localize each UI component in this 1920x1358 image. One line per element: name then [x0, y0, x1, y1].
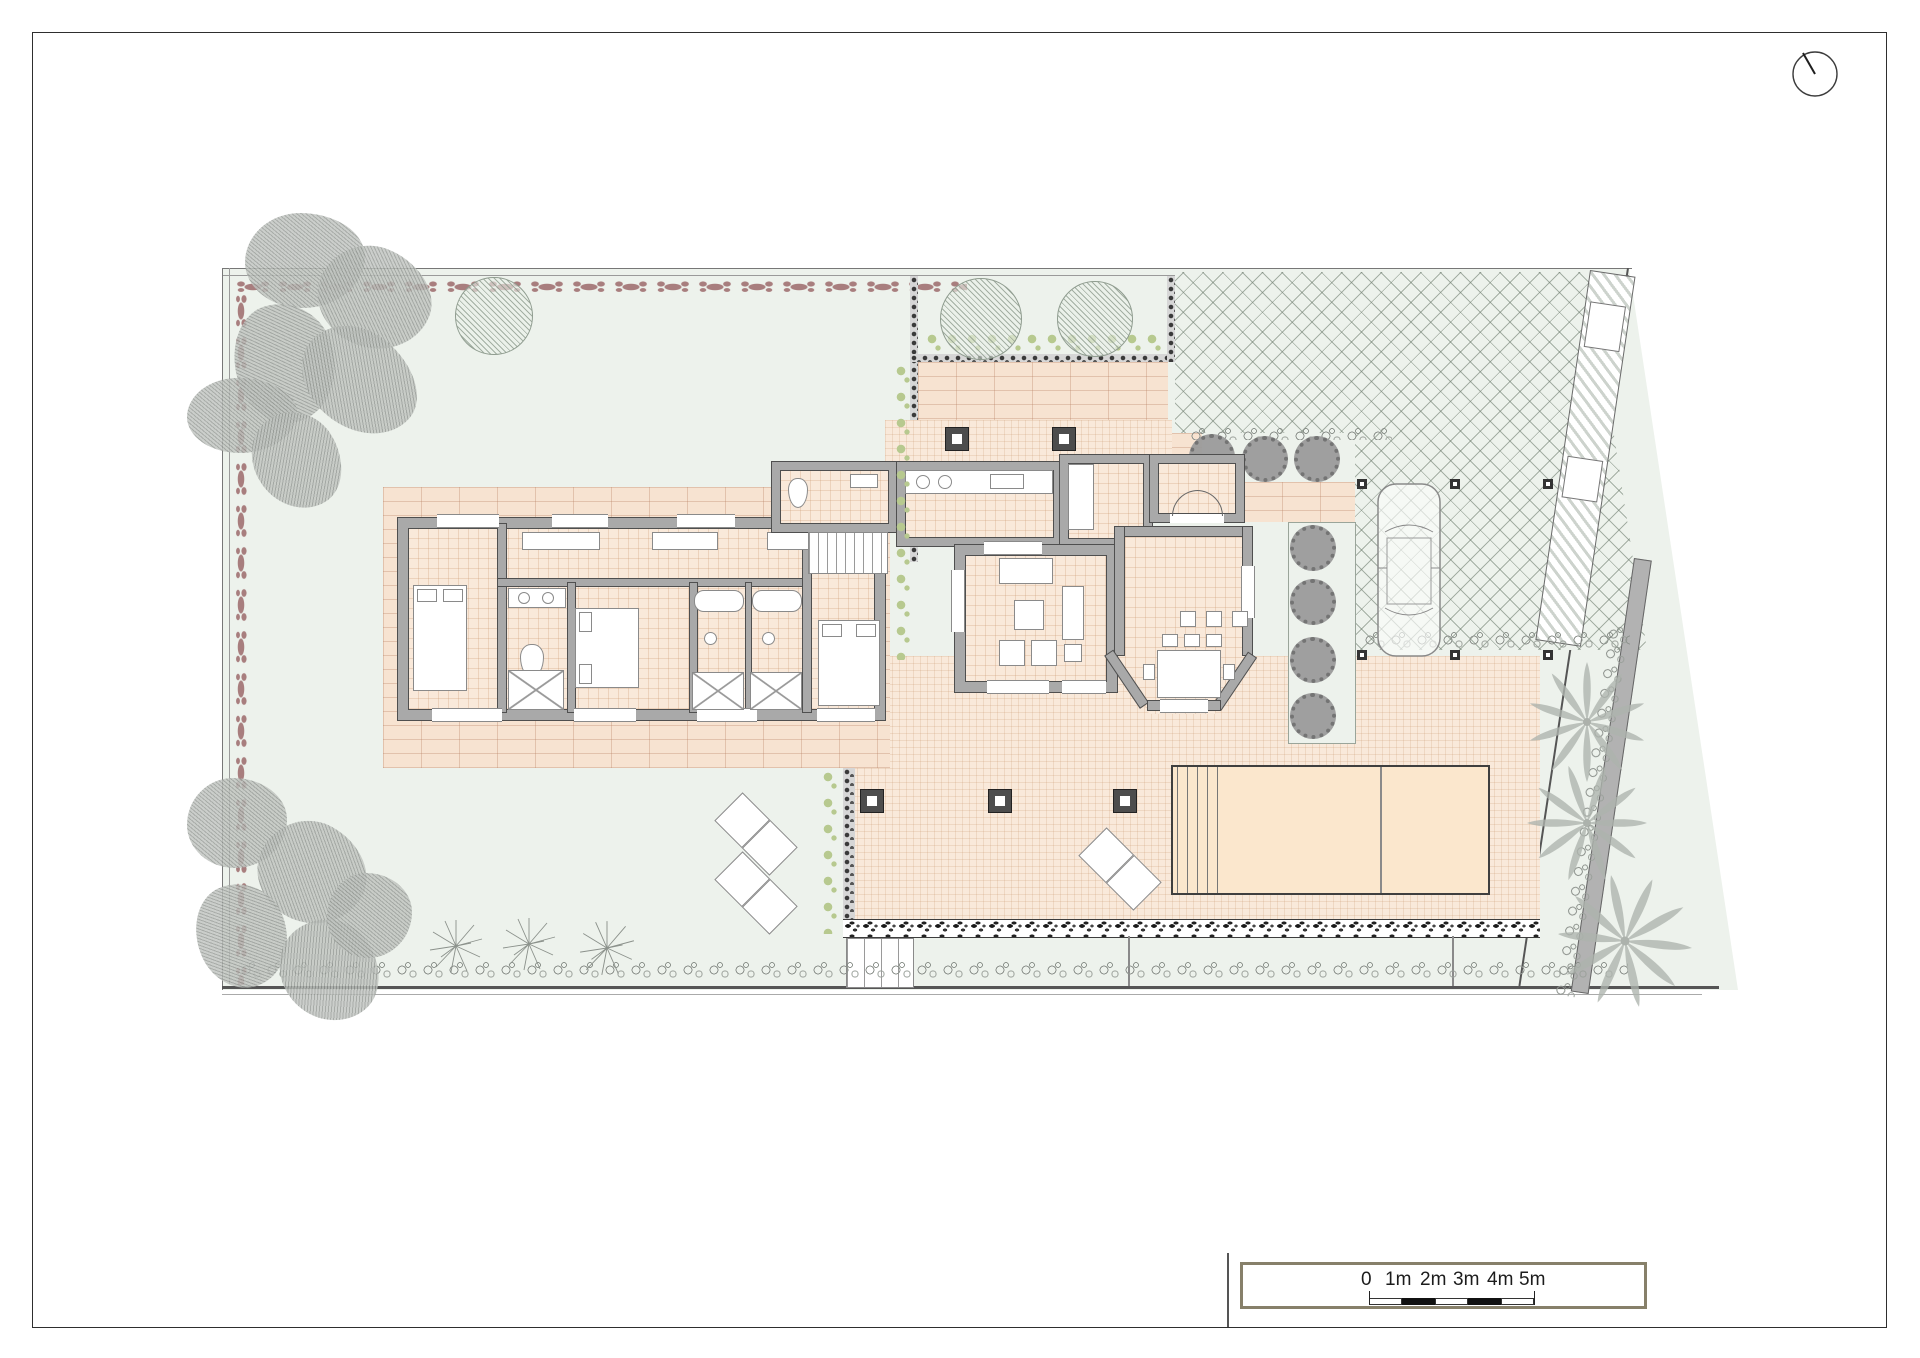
- staircase: [808, 532, 888, 574]
- site-plan-sheet: 0 1m 2m 3m 4m 5m: [0, 0, 1920, 1358]
- bed: [413, 585, 467, 691]
- parking-marker: [1543, 479, 1553, 489]
- terrace-edge-wall: [843, 768, 855, 923]
- tree-round-icon: [455, 277, 533, 355]
- palm-tree-icon: [1538, 854, 1711, 1027]
- scale-segment: [1369, 1298, 1402, 1305]
- window: [817, 708, 875, 722]
- kitchen-island-stool: [1180, 611, 1196, 627]
- wardrobe: [522, 532, 600, 550]
- window: [552, 514, 608, 528]
- scale-label: 3m: [1453, 1269, 1479, 1291]
- window: [1062, 680, 1106, 694]
- dining-chair: [1143, 664, 1155, 680]
- pool-steps: [1177, 767, 1223, 893]
- bed: [575, 608, 639, 688]
- sink: [704, 632, 717, 645]
- kitchen-island-stool: [1206, 611, 1222, 627]
- coffee-table: [1014, 600, 1044, 630]
- scale-tick: [1369, 1291, 1370, 1305]
- parking-marker: [1450, 479, 1460, 489]
- floor-light: [1114, 790, 1136, 812]
- planter-tree-icon: [1290, 579, 1336, 625]
- sink-counter: [508, 588, 566, 608]
- gate-opening: [1584, 301, 1626, 352]
- scale-bar: 0 1m 2m 3m 4m 5m: [1240, 1262, 1647, 1309]
- armchair: [999, 640, 1025, 666]
- window: [987, 680, 1049, 694]
- shrub-column: [891, 360, 913, 660]
- scale-label: 4m: [1487, 1269, 1513, 1291]
- shower: [508, 670, 564, 710]
- armchair: [1031, 640, 1057, 666]
- parking-marker: [1450, 650, 1460, 660]
- scale-label: 1m: [1385, 1269, 1411, 1291]
- gravel-border: [843, 919, 1540, 938]
- car-icon: [1373, 480, 1445, 660]
- boundary-top: [222, 268, 1632, 269]
- sink: [542, 592, 554, 604]
- bed: [818, 620, 880, 706]
- wardrobe: [1068, 464, 1094, 530]
- sink: [518, 592, 530, 604]
- scale-label: 5m: [1519, 1269, 1545, 1291]
- scale-segment: [1402, 1298, 1435, 1305]
- dining-table: [1157, 650, 1221, 698]
- floor-light: [989, 790, 1011, 812]
- sofa: [1062, 586, 1084, 640]
- parking-marker: [1357, 650, 1367, 660]
- courtyard-wall-bottom: [910, 354, 1172, 362]
- interior-wall: [568, 583, 575, 712]
- boundary-left-inner: [229, 268, 230, 984]
- parking-marker: [1357, 479, 1367, 489]
- window: [697, 708, 757, 722]
- dining-chair: [1206, 634, 1222, 647]
- sofa: [999, 558, 1053, 584]
- boundary-bottom-outer: [222, 994, 1702, 995]
- branch-tree-icon: [500, 915, 558, 973]
- pergola-post: [946, 428, 968, 450]
- window: [1160, 699, 1208, 713]
- window: [432, 708, 502, 722]
- scale-segment: [1468, 1298, 1501, 1305]
- scale-segment: [1435, 1298, 1468, 1305]
- gate-opening: [1561, 456, 1603, 503]
- tree-round-icon: [1057, 281, 1133, 357]
- window: [984, 541, 1042, 555]
- sink-counter: [850, 474, 878, 488]
- shower: [750, 672, 802, 710]
- planter-tree-icon: [1294, 436, 1340, 482]
- wardrobe: [652, 532, 718, 550]
- kitchen-island-stool: [1232, 611, 1248, 627]
- planter-tree-icon: [1290, 693, 1336, 739]
- sink: [762, 632, 775, 645]
- shrub-column: [818, 766, 840, 934]
- boundary-left: [222, 268, 223, 990]
- interior-wall: [498, 524, 506, 712]
- pool-lane-line: [1380, 767, 1382, 893]
- scale-label: 0: [1361, 1269, 1372, 1291]
- pergola-post: [1053, 428, 1075, 450]
- side-table: [1064, 644, 1082, 662]
- scale-segment: [1501, 1298, 1534, 1305]
- planter-tree-icon: [1290, 637, 1336, 683]
- bathtub: [694, 590, 744, 612]
- dining-chair: [1223, 664, 1235, 680]
- boundary-bottom: [222, 986, 1719, 989]
- tree-round-icon: [940, 278, 1022, 360]
- site-plan: [222, 268, 1752, 1028]
- branch-tree-icon: [427, 917, 485, 975]
- kitchen-sink: [990, 474, 1024, 489]
- titleblock-divider: [1227, 1253, 1229, 1327]
- north-indicator-icon: [1783, 42, 1847, 106]
- shower: [692, 672, 744, 710]
- scale-label: 2m: [1420, 1269, 1446, 1291]
- courtyard-wall-right: [1167, 276, 1175, 362]
- window: [677, 514, 735, 528]
- floor-light: [861, 790, 883, 812]
- planter-tree-icon: [1242, 436, 1288, 482]
- window: [437, 514, 499, 528]
- branch-tree-icon: [577, 918, 637, 978]
- window: [574, 708, 636, 722]
- bathtub: [752, 590, 802, 612]
- dining-chair: [1184, 634, 1200, 647]
- dining-chair: [1162, 634, 1178, 647]
- scale-tick: [1534, 1291, 1535, 1305]
- dining-wall: [1115, 527, 1124, 655]
- swimming-pool: [1171, 765, 1490, 895]
- cooktop-burner: [938, 475, 952, 489]
- cooktop-burner: [916, 475, 930, 489]
- interior-wall: [498, 579, 811, 586]
- planter-tree-icon: [1290, 525, 1336, 571]
- dining-wall: [1115, 527, 1252, 536]
- window: [951, 570, 965, 632]
